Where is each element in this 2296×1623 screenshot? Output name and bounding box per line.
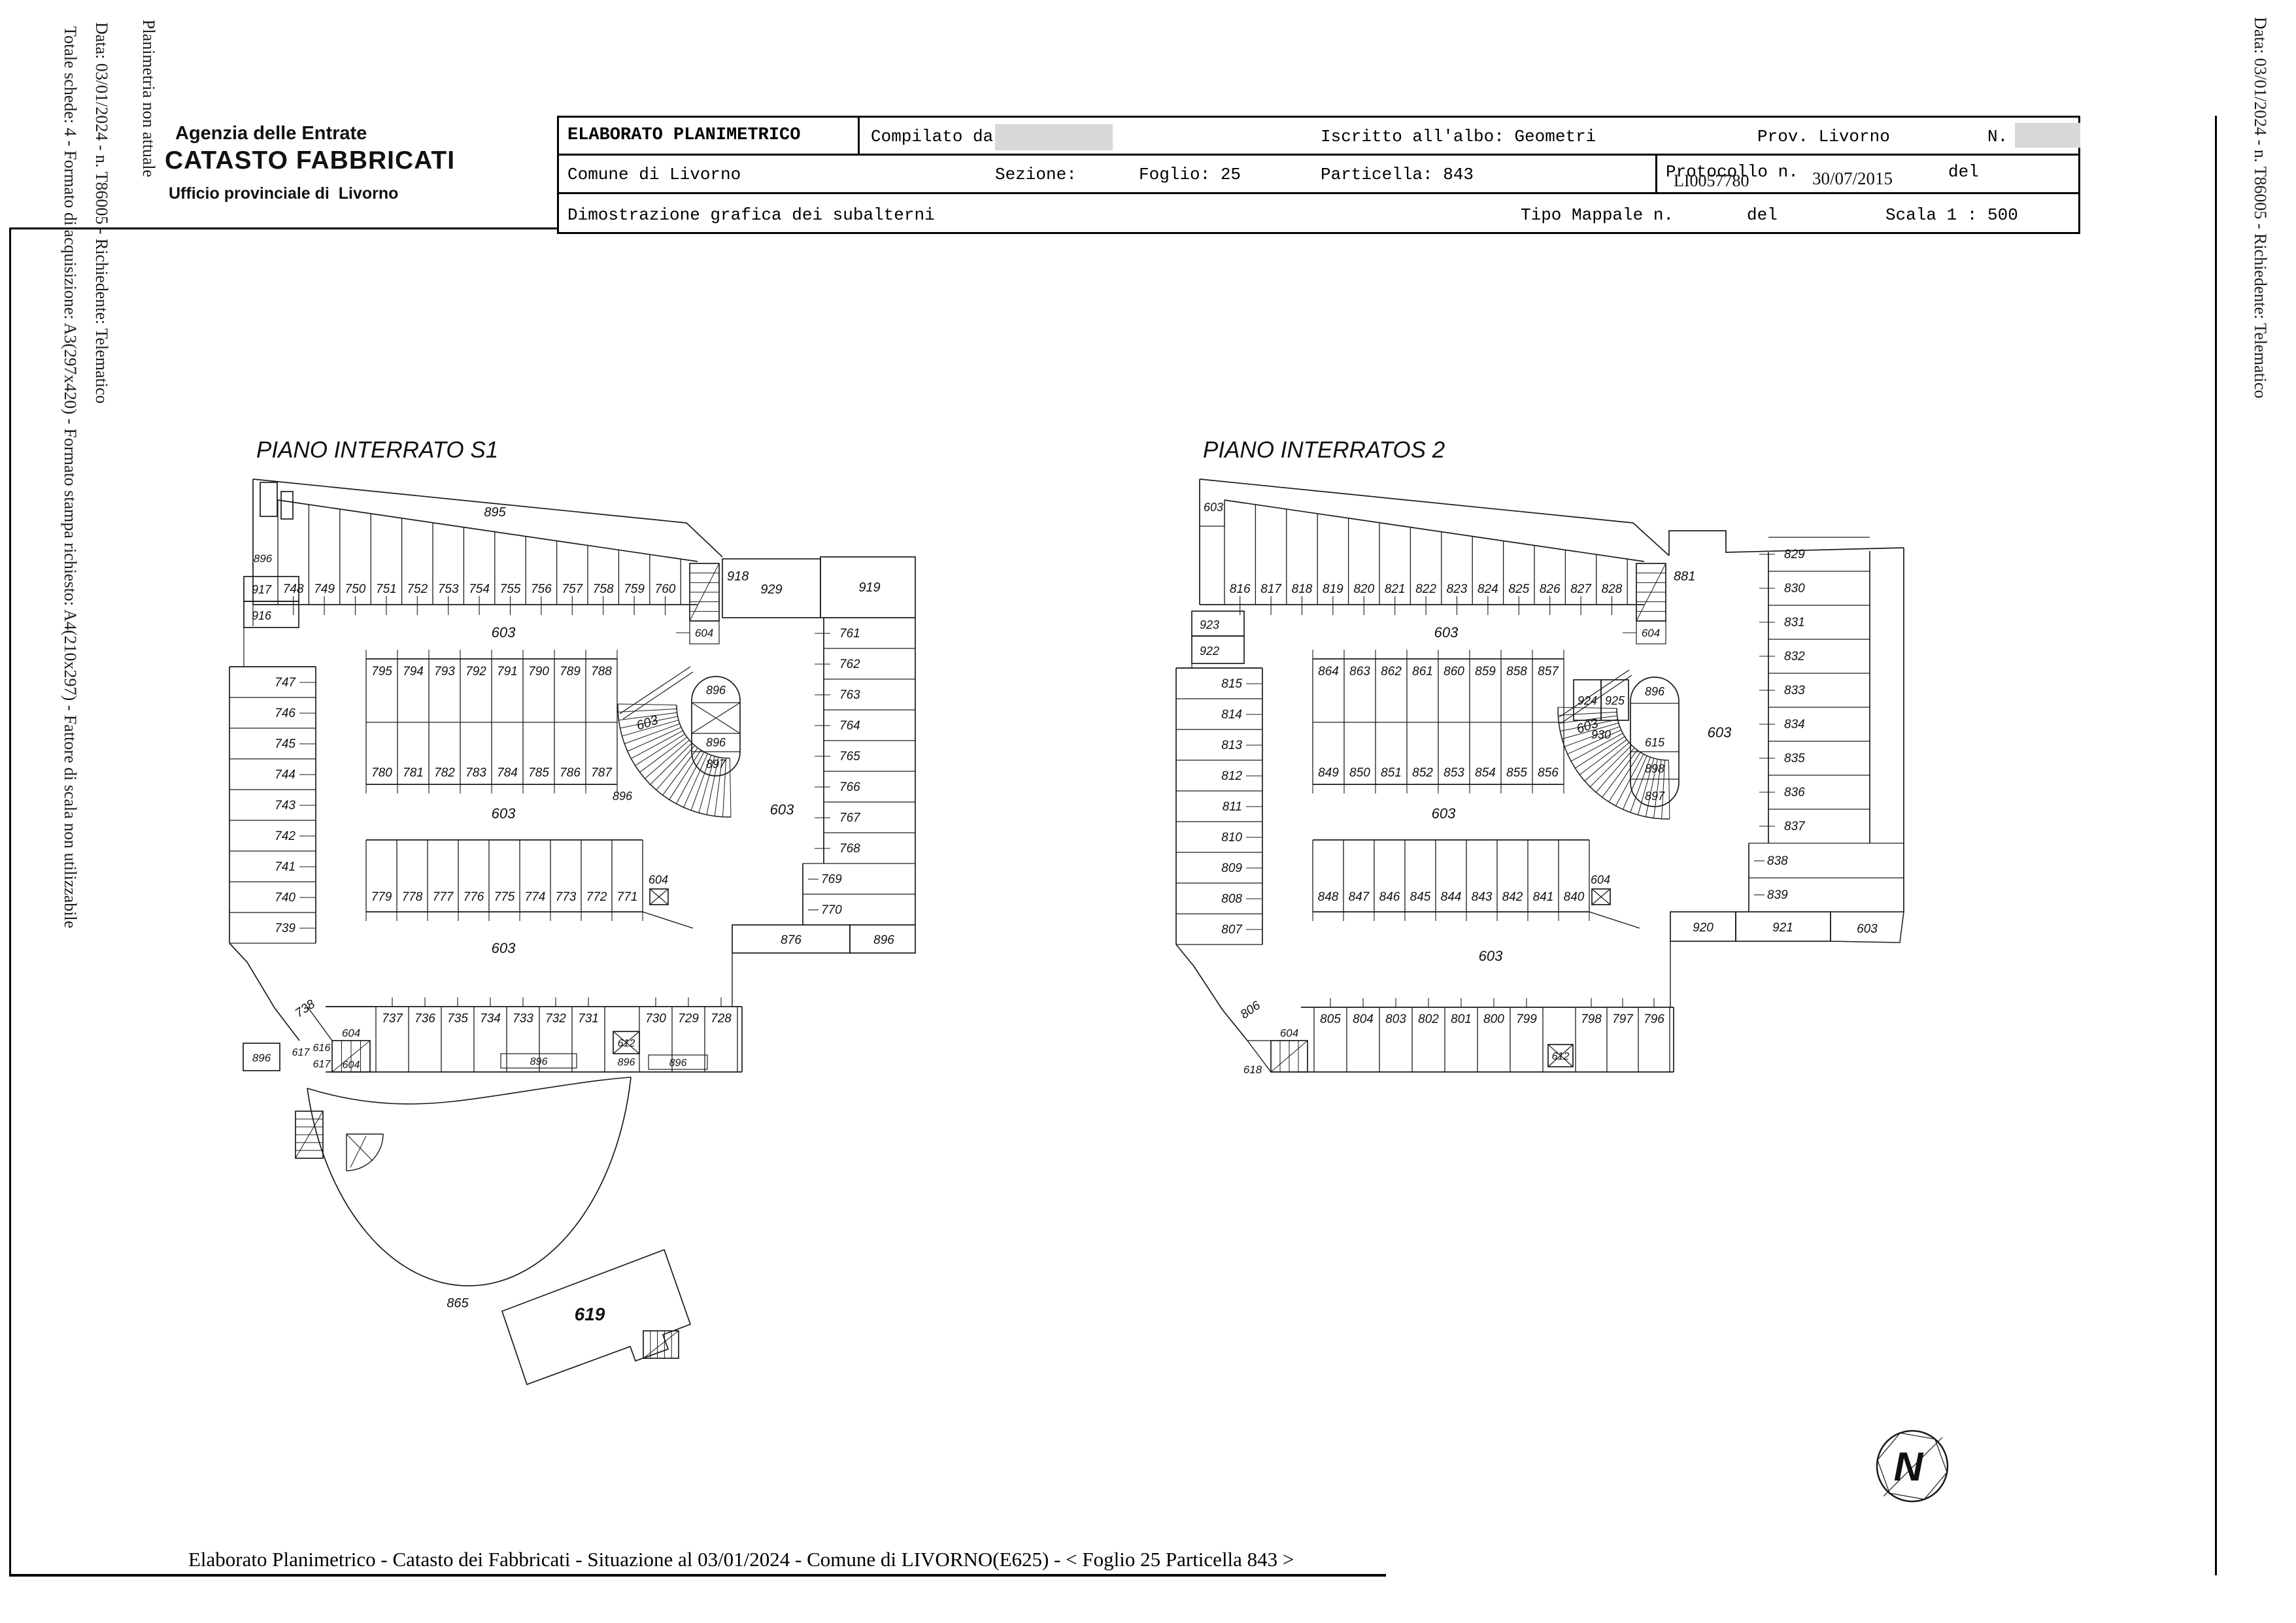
wall-line <box>346 1134 373 1161</box>
stall-label: 831 <box>1784 616 1805 629</box>
stall-label: 849 <box>1318 766 1339 780</box>
stall-label: 828 <box>1602 582 1623 596</box>
stall-label: 801 <box>1451 1012 1472 1026</box>
stall-label: 760 <box>655 582 676 596</box>
stall-label: 748 <box>283 582 304 596</box>
stall-label: 774 <box>525 890 546 904</box>
stall-label: 603 <box>492 624 516 641</box>
stall-label: 896 <box>1645 685 1665 698</box>
stall-label: 743 <box>275 799 295 812</box>
stall-label: 777 <box>433 890 454 904</box>
stall-label: 821 <box>1385 582 1406 596</box>
stall-label: 603 <box>1204 501 1223 514</box>
stall-label: 756 <box>531 582 552 596</box>
document-page: Planimetria non attuale Data: 03/01/2024… <box>0 0 2296 1623</box>
stall-label: 781 <box>403 766 424 780</box>
stall-label: 865 <box>447 1296 469 1311</box>
stall-label: 918 <box>727 569 749 584</box>
stall-label: 804 <box>1353 1012 1374 1026</box>
stall-label: 896 <box>873 933 894 947</box>
stall-label: 604 <box>1280 1027 1298 1039</box>
stall-label: 834 <box>1784 718 1805 731</box>
stall-label: 846 <box>1379 890 1400 904</box>
stall-label: 603 <box>1857 922 1878 936</box>
stall-label: 745 <box>275 737 295 751</box>
stall-label: 922 <box>1200 644 1219 658</box>
stall-label: 830 <box>1784 582 1805 595</box>
wall-line <box>643 1331 679 1358</box>
stall-label: 838 <box>1767 854 1788 868</box>
stall-label: 747 <box>275 676 296 690</box>
stall-label: 604 <box>1591 873 1610 886</box>
stall-label: 805 <box>1320 1012 1341 1026</box>
stall-label: 896 <box>613 790 633 803</box>
stall-label: 603 <box>1708 724 1732 741</box>
stall-label: 857 <box>1538 665 1559 678</box>
stall-label: 773 <box>556 890 577 904</box>
stall-label: 618 <box>1243 1063 1262 1076</box>
stall-label: 853 <box>1443 766 1464 780</box>
stall-label: 734 <box>480 1012 501 1026</box>
stall-label: 860 <box>1443 665 1464 678</box>
wall-polyline <box>229 943 299 1041</box>
wall-line <box>1559 670 1629 717</box>
stall-label: 919 <box>858 580 880 595</box>
stall-label: 861 <box>1412 665 1433 678</box>
stall-label: 741 <box>275 860 295 874</box>
stall-label: 836 <box>1784 786 1805 799</box>
stall-label: 825 <box>1508 582 1529 596</box>
stall-label: 817 <box>1260 582 1282 596</box>
stall-label: 862 <box>1381 665 1402 678</box>
stall-label: 729 <box>678 1012 699 1026</box>
stall-label: 603 <box>1434 624 1459 641</box>
stall-label: 617 <box>292 1047 311 1058</box>
stall-label: 876 <box>781 933 802 947</box>
stall-label: 612 <box>1552 1051 1570 1062</box>
stall-label: 794 <box>403 665 424 678</box>
stall-label: 604 <box>695 627 713 639</box>
stall-label: 619 <box>575 1304 605 1324</box>
stall-label: 792 <box>465 665 486 678</box>
stall-label: 841 <box>1533 890 1554 904</box>
stall-label: 881 <box>1674 569 1695 584</box>
stall-label: 800 <box>1483 1012 1504 1026</box>
compass-north-letter: N <box>1894 1445 1924 1490</box>
stall-label: 826 <box>1540 582 1561 596</box>
stall-label: 864 <box>1318 665 1339 678</box>
stall-label: 603 <box>1479 948 1503 964</box>
stall-label: 603 <box>635 713 660 733</box>
stall-label: 848 <box>1318 890 1339 904</box>
stall-label: 751 <box>376 582 397 596</box>
stall-label: 759 <box>624 582 645 596</box>
stall-label: 789 <box>560 665 581 678</box>
stall-label: 842 <box>1502 890 1523 904</box>
stall-label: 897 <box>706 758 726 771</box>
stall-label: 733 <box>513 1012 533 1026</box>
stall-label: 917 <box>252 583 272 596</box>
stall-label: 809 <box>1221 862 1242 875</box>
stall-label: 837 <box>1784 820 1806 833</box>
stall-label: 770 <box>821 903 842 917</box>
stall-label: 850 <box>1349 766 1370 780</box>
wall-line <box>730 758 731 817</box>
stall-label: 752 <box>407 582 428 596</box>
stall-label: 746 <box>275 707 295 720</box>
stall-label: 799 <box>1516 1012 1537 1026</box>
stall-label: 844 <box>1441 890 1462 904</box>
wall-line <box>620 667 690 714</box>
floor-plan-canvas: PIANO INTERRATO S18958967487497507517527… <box>0 0 2296 1623</box>
wall-polyline <box>1200 479 1669 556</box>
wall-line <box>669 750 701 800</box>
stall-label: 740 <box>275 891 295 905</box>
stall-label: 827 <box>1570 582 1592 596</box>
stall-label: 604 <box>343 1060 360 1071</box>
stall-label: 791 <box>497 665 518 678</box>
stall-label: 790 <box>528 665 549 678</box>
stall-label: 819 <box>1323 582 1343 596</box>
stall-label: 603 <box>1432 805 1456 822</box>
stall-label: 896 <box>618 1057 635 1068</box>
stall-label: 737 <box>382 1012 403 1026</box>
plan-title-s2: PIANO INTERRATOS 2 <box>1203 437 1445 463</box>
stall-label: 730 <box>645 1012 666 1026</box>
stall-label: 895 <box>484 505 506 520</box>
stall-label: 778 <box>402 890 423 904</box>
stall-label: 898 <box>1645 762 1664 775</box>
stall-label: 858 <box>1506 665 1527 678</box>
stall-label: 728 <box>711 1012 732 1026</box>
stall-label: 851 <box>1381 766 1402 780</box>
wall-line <box>307 1007 332 1041</box>
stall-label: 766 <box>839 780 860 794</box>
stall-label: 840 <box>1564 890 1585 904</box>
stall-label: 749 <box>314 582 335 596</box>
stall-label: 603 <box>492 940 516 956</box>
stall-label: 824 <box>1477 582 1498 596</box>
wall-line <box>1224 500 1644 561</box>
stall-label: 785 <box>528 766 549 780</box>
stall-label: 812 <box>1221 769 1242 783</box>
stall-label: 612 <box>618 1038 635 1049</box>
stall-label: 765 <box>839 750 860 763</box>
stall-label: 814 <box>1221 708 1242 722</box>
stall-label: 780 <box>371 766 392 780</box>
stall-label: 896 <box>530 1056 548 1067</box>
stall-label: 782 <box>434 766 455 780</box>
stall-label: 896 <box>706 736 726 749</box>
stall-label: 854 <box>1475 766 1496 780</box>
stall-label: 750 <box>345 582 366 596</box>
stall-label: 617 <box>313 1059 331 1070</box>
stall-label: 772 <box>586 890 607 904</box>
stall-label: 847 <box>1349 890 1370 904</box>
stall-label: 604 <box>342 1027 360 1039</box>
stall-label: 823 <box>1447 582 1468 596</box>
stall-label: 755 <box>500 582 521 596</box>
room-box <box>260 482 277 516</box>
stall-label: 779 <box>371 890 392 904</box>
stall-label: 859 <box>1475 665 1496 678</box>
stall-label: 798 <box>1581 1012 1602 1026</box>
stall-label: 603 <box>492 805 516 822</box>
stall-label: 739 <box>275 922 295 935</box>
stall-label: 768 <box>839 842 860 856</box>
wall-line <box>623 672 693 719</box>
stall-label: 736 <box>414 1012 435 1026</box>
stall-label: 839 <box>1767 888 1788 902</box>
stall-label: 808 <box>1221 892 1242 906</box>
wall-line <box>1558 707 1617 709</box>
stall-label: 811 <box>1223 800 1242 814</box>
room-box <box>281 492 293 519</box>
stall-label: 763 <box>839 688 860 702</box>
wall-path <box>307 1077 631 1286</box>
stall-label: 786 <box>560 766 581 780</box>
stall-label: 762 <box>839 658 860 671</box>
stall-label: 738 <box>293 997 318 1021</box>
stall-label: 787 <box>591 766 613 780</box>
wall-line <box>1668 760 1670 819</box>
stall-label: 810 <box>1221 831 1242 845</box>
stall-label: 604 <box>1642 627 1660 639</box>
stall-label: 793 <box>434 665 455 678</box>
stall-label: 784 <box>497 766 518 780</box>
plan-title-s1: PIANO INTERRATO S1 <box>256 437 498 463</box>
stall-label: 604 <box>649 873 668 886</box>
wall-line <box>1609 752 1640 802</box>
stall-label: 863 <box>1349 665 1370 678</box>
stall-label: 843 <box>1472 890 1493 904</box>
stall-label: 735 <box>447 1012 468 1026</box>
stall-label: 855 <box>1506 766 1527 780</box>
stall-label: 776 <box>464 890 484 904</box>
stall-label: 797 <box>1612 1012 1634 1026</box>
stall-label: 616 <box>313 1043 331 1054</box>
stall-label: 732 <box>545 1012 566 1026</box>
wall-path <box>307 1077 631 1104</box>
stall-label: 816 <box>1230 582 1251 596</box>
stall-label: 771 <box>617 890 638 904</box>
stall-label: 753 <box>438 582 459 596</box>
stall-label: 916 <box>252 609 272 622</box>
stall-label: 813 <box>1221 739 1242 752</box>
wall-line <box>1589 912 1640 928</box>
stall-label: 896 <box>706 684 726 697</box>
stall-label: 896 <box>254 552 273 565</box>
stall-label: 761 <box>839 627 860 641</box>
stall-label: 852 <box>1412 766 1433 780</box>
stall-label: 742 <box>275 829 295 843</box>
stall-label: 806 <box>1238 999 1263 1022</box>
stall-label: 896 <box>252 1052 271 1064</box>
stall-label: 767 <box>839 811 861 825</box>
stall-label: 796 <box>1644 1012 1664 1026</box>
stall-label: 818 <box>1292 582 1313 596</box>
wall-line <box>1623 756 1647 809</box>
wall-line <box>1615 754 1644 806</box>
stall-label: 764 <box>839 719 860 733</box>
stall-label: 920 <box>1693 921 1714 935</box>
stall-label: 783 <box>465 766 486 780</box>
stall-label: 822 <box>1415 582 1436 596</box>
stall-label: 754 <box>469 582 490 596</box>
stall-label: 795 <box>371 665 392 678</box>
stall-label: 925 <box>1605 694 1625 707</box>
stall-label: 845 <box>1410 890 1431 904</box>
wall-line <box>676 752 704 803</box>
wall-polyline <box>1176 945 1247 1041</box>
wall-line <box>1575 737 1625 768</box>
stall-label: 833 <box>1784 684 1805 697</box>
stall-label: 921 <box>1772 921 1793 935</box>
stall-label: 731 <box>578 1012 599 1026</box>
stall-label: 769 <box>821 873 842 886</box>
stall-label: 832 <box>1784 650 1805 663</box>
wall-line <box>1558 712 1617 715</box>
stall-label: 603 <box>770 801 794 818</box>
stall-label: 815 <box>1221 677 1242 691</box>
stall-label: 856 <box>1538 766 1559 780</box>
stall-label: 896 <box>669 1058 687 1069</box>
stall-label: 820 <box>1353 582 1374 596</box>
wall-line <box>643 912 693 928</box>
stall-label: 829 <box>1784 548 1805 561</box>
stall-label: 775 <box>494 890 515 904</box>
stall-label: 788 <box>591 665 612 678</box>
stall-label: 929 <box>760 582 782 597</box>
stall-label: 615 <box>1645 736 1665 749</box>
wall-line <box>635 734 685 765</box>
stall-label: 802 <box>1418 1012 1439 1026</box>
wall-line <box>618 704 677 705</box>
stall-label: 758 <box>593 582 614 596</box>
wall-line <box>631 731 683 759</box>
stall-label: 807 <box>1221 923 1243 937</box>
stall-label: 757 <box>562 582 583 596</box>
stall-label: 835 <box>1784 752 1805 765</box>
stall-label: 897 <box>1645 790 1665 803</box>
stall-label: 744 <box>275 768 295 782</box>
stall-label: 923 <box>1200 618 1219 631</box>
stall-label: 803 <box>1385 1012 1406 1026</box>
